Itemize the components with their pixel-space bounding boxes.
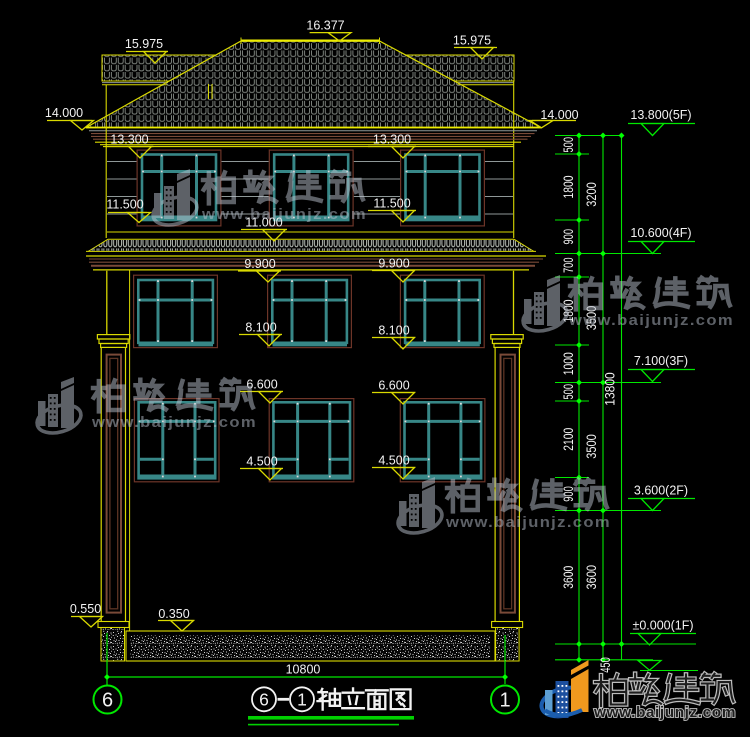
svg-text:11.500: 11.500 — [373, 197, 410, 211]
svg-text:7.100(3F): 7.100(3F) — [634, 354, 688, 368]
svg-text:0.550: 0.550 — [70, 602, 101, 616]
svg-text:1: 1 — [297, 690, 307, 710]
svg-text:500: 500 — [561, 384, 576, 400]
svg-text:6: 6 — [259, 690, 269, 710]
svg-text:8.100: 8.100 — [245, 321, 276, 335]
svg-text:16.377: 16.377 — [306, 19, 344, 33]
svg-text:700: 700 — [561, 258, 576, 274]
svg-text:9.900: 9.900 — [378, 257, 409, 271]
svg-text:4.500: 4.500 — [246, 455, 277, 469]
svg-text:10800: 10800 — [286, 663, 321, 677]
svg-text:9.900: 9.900 — [244, 257, 275, 271]
svg-text:13.800(5F): 13.800(5F) — [630, 108, 691, 122]
svg-text:www.baijunjz.com: www.baijunjz.com — [91, 415, 257, 431]
svg-text:900: 900 — [561, 229, 576, 245]
svg-text:www.baijunjz.com: www.baijunjz.com — [568, 313, 734, 329]
svg-text:1: 1 — [499, 690, 510, 712]
svg-text:11.500: 11.500 — [106, 198, 143, 212]
svg-text:3200: 3200 — [584, 182, 599, 207]
svg-text:15.975: 15.975 — [125, 37, 163, 51]
svg-text:6: 6 — [102, 690, 113, 712]
svg-text:3.600(2F): 3.600(2F) — [634, 484, 688, 498]
svg-text:500: 500 — [561, 137, 576, 153]
svg-text:3500: 3500 — [584, 434, 599, 459]
svg-text:1000: 1000 — [561, 352, 576, 375]
svg-text:2100: 2100 — [561, 428, 576, 451]
svg-text:6.600: 6.600 — [378, 379, 409, 393]
svg-text:13.300: 13.300 — [110, 133, 148, 147]
svg-text:1800: 1800 — [561, 176, 576, 199]
svg-text:www.baijunjz.com: www.baijunjz.com — [201, 207, 367, 223]
svg-text:4.500: 4.500 — [378, 454, 409, 468]
svg-text:www.baijunjz.com: www.baijunjz.com — [593, 705, 736, 721]
svg-text:14.000: 14.000 — [45, 106, 83, 120]
svg-text:www.baijunjz.com: www.baijunjz.com — [445, 515, 611, 531]
svg-text:13.300: 13.300 — [373, 133, 411, 147]
svg-text:0.350: 0.350 — [158, 607, 189, 621]
svg-text:3600: 3600 — [584, 565, 599, 590]
svg-text:±0.000(1F): ±0.000(1F) — [632, 619, 693, 633]
svg-text:8.100: 8.100 — [378, 324, 409, 338]
svg-text:15.975: 15.975 — [453, 34, 491, 48]
svg-text:450: 450 — [598, 657, 613, 673]
svg-text:10.600(4F): 10.600(4F) — [630, 226, 691, 240]
svg-text:13800: 13800 — [603, 372, 618, 406]
svg-text:3600: 3600 — [561, 566, 576, 589]
